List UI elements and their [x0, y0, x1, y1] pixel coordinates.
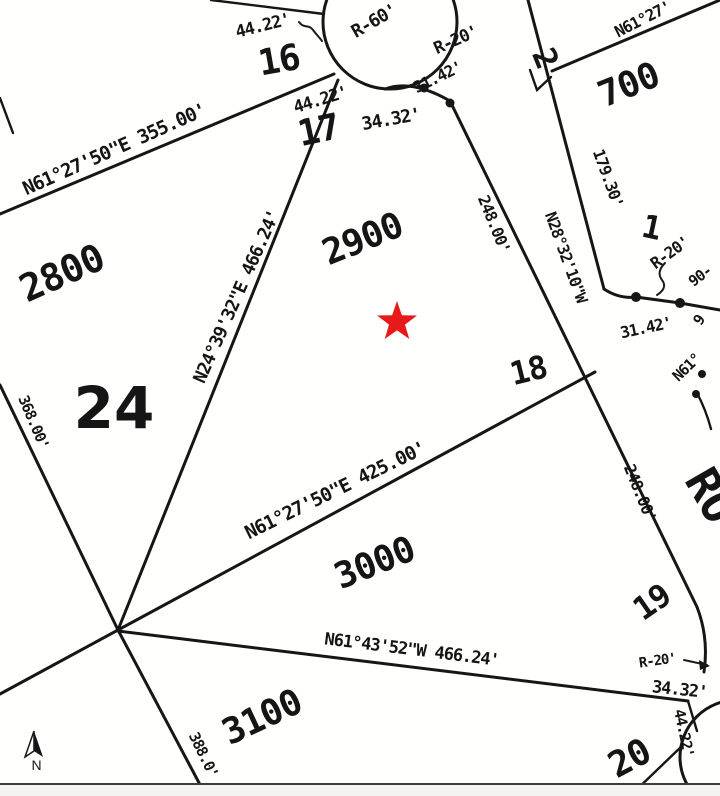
radius-label-r20-bottom: R-20'	[638, 651, 677, 672]
distance-label-3432-bottom: 34.32'	[651, 677, 708, 703]
distance-label-368: 368.00'	[14, 393, 53, 452]
distance-label-248-upper: 248.00'	[474, 192, 514, 255]
north-label: N	[31, 757, 40, 773]
lot-line-fragment-left	[0, 98, 13, 133]
lot-number-16: 16	[255, 37, 303, 85]
distance-label-4422-lot16: 44.22'	[233, 10, 292, 43]
survey-point-dot	[692, 390, 700, 398]
map-bottom-border	[0, 783, 720, 796]
lot-line-2800-355	[0, 74, 334, 214]
road-name-label: RO	[674, 458, 720, 531]
lot-line-388	[118, 630, 206, 796]
lot-line-sw	[0, 630, 118, 694]
survey-point-dot	[675, 298, 685, 308]
lot-line-n24	[118, 80, 338, 630]
lot-number-19: 19	[626, 576, 678, 628]
plat-map: 44.22' 16 R-60' R-20' 31.42' 44.22' 17 3…	[0, 0, 720, 796]
star-marker[interactable]	[377, 301, 417, 339]
distance-label-3432-top: 34.32'	[360, 104, 422, 135]
bearing-label-n61-fragment: N61°	[669, 350, 705, 385]
distance-label-248-lower: 248.00'	[620, 461, 660, 524]
survey-point-dot	[631, 292, 641, 302]
parcel-number-3100: 3100	[216, 682, 308, 754]
parcel-number-2900: 2900	[317, 205, 409, 274]
lot-number-18: 18	[506, 347, 551, 393]
distance-label-90-fragment: 90-	[685, 262, 715, 291]
parcel-number-2800: 2800	[13, 235, 111, 311]
distance-label-3142-right: 31.42'	[619, 313, 674, 342]
lot-line-15-16	[211, 0, 324, 14]
leader-squiggle-4422	[299, 22, 322, 41]
distance-label-17930: 179.30'	[589, 146, 628, 209]
distance-label-4422-lot20: 44.22'	[670, 708, 698, 759]
bearing-label-355: N61°27'50"E 355.00'	[19, 99, 209, 200]
lot-number-17: 17	[294, 106, 343, 155]
distance-label-388: 388.0'	[185, 729, 222, 780]
parcel-number-24: 24	[74, 374, 155, 442]
bearing-label-466-east: N24°39'32"E 466.24'	[189, 207, 284, 386]
bearing-label-466-west: N61°43'52"W 466.24'	[323, 629, 500, 670]
label-fragment-9: 9	[689, 311, 709, 329]
bearing-label-road-n28: N28°32'10"W	[541, 209, 592, 306]
survey-point-dot	[446, 99, 455, 108]
parcel-number-700: 700	[592, 55, 665, 116]
bearing-label-425: N61°27'50"E 425.00'	[241, 437, 429, 544]
lot-number-1: 1	[638, 207, 664, 248]
north-arrow	[25, 731, 43, 757]
parcel-number-3000: 3000	[329, 529, 421, 598]
survey-point-dot	[698, 370, 706, 378]
curve-fragment-right	[697, 393, 711, 429]
radius-label-r60: R-60'	[348, 0, 401, 43]
bearing-label-700-north: N61°27'	[611, 0, 673, 41]
distance-label-3142-top: 31.42'	[410, 57, 465, 97]
